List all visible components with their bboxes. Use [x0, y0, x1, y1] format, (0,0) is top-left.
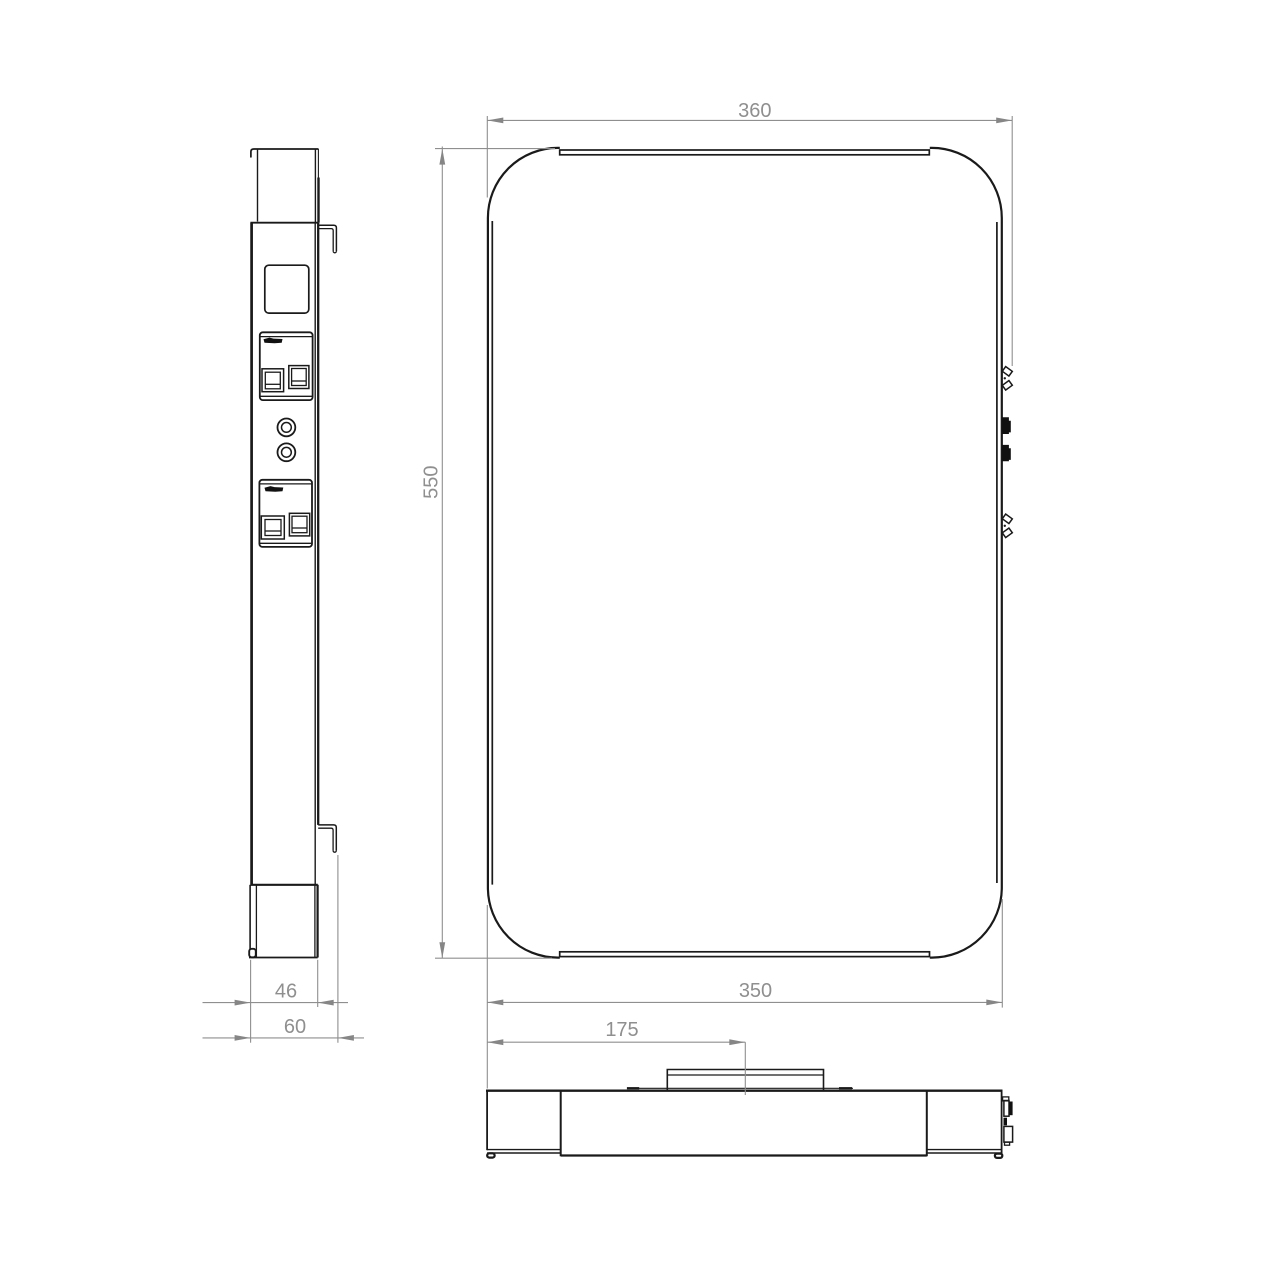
svg-text:46: 46: [275, 981, 297, 1003]
svg-text:360: 360: [738, 100, 771, 122]
svg-text:175: 175: [605, 1019, 638, 1041]
svg-text:350: 350: [739, 980, 772, 1002]
svg-text:60: 60: [284, 1016, 306, 1038]
svg-text:550: 550: [420, 466, 442, 499]
